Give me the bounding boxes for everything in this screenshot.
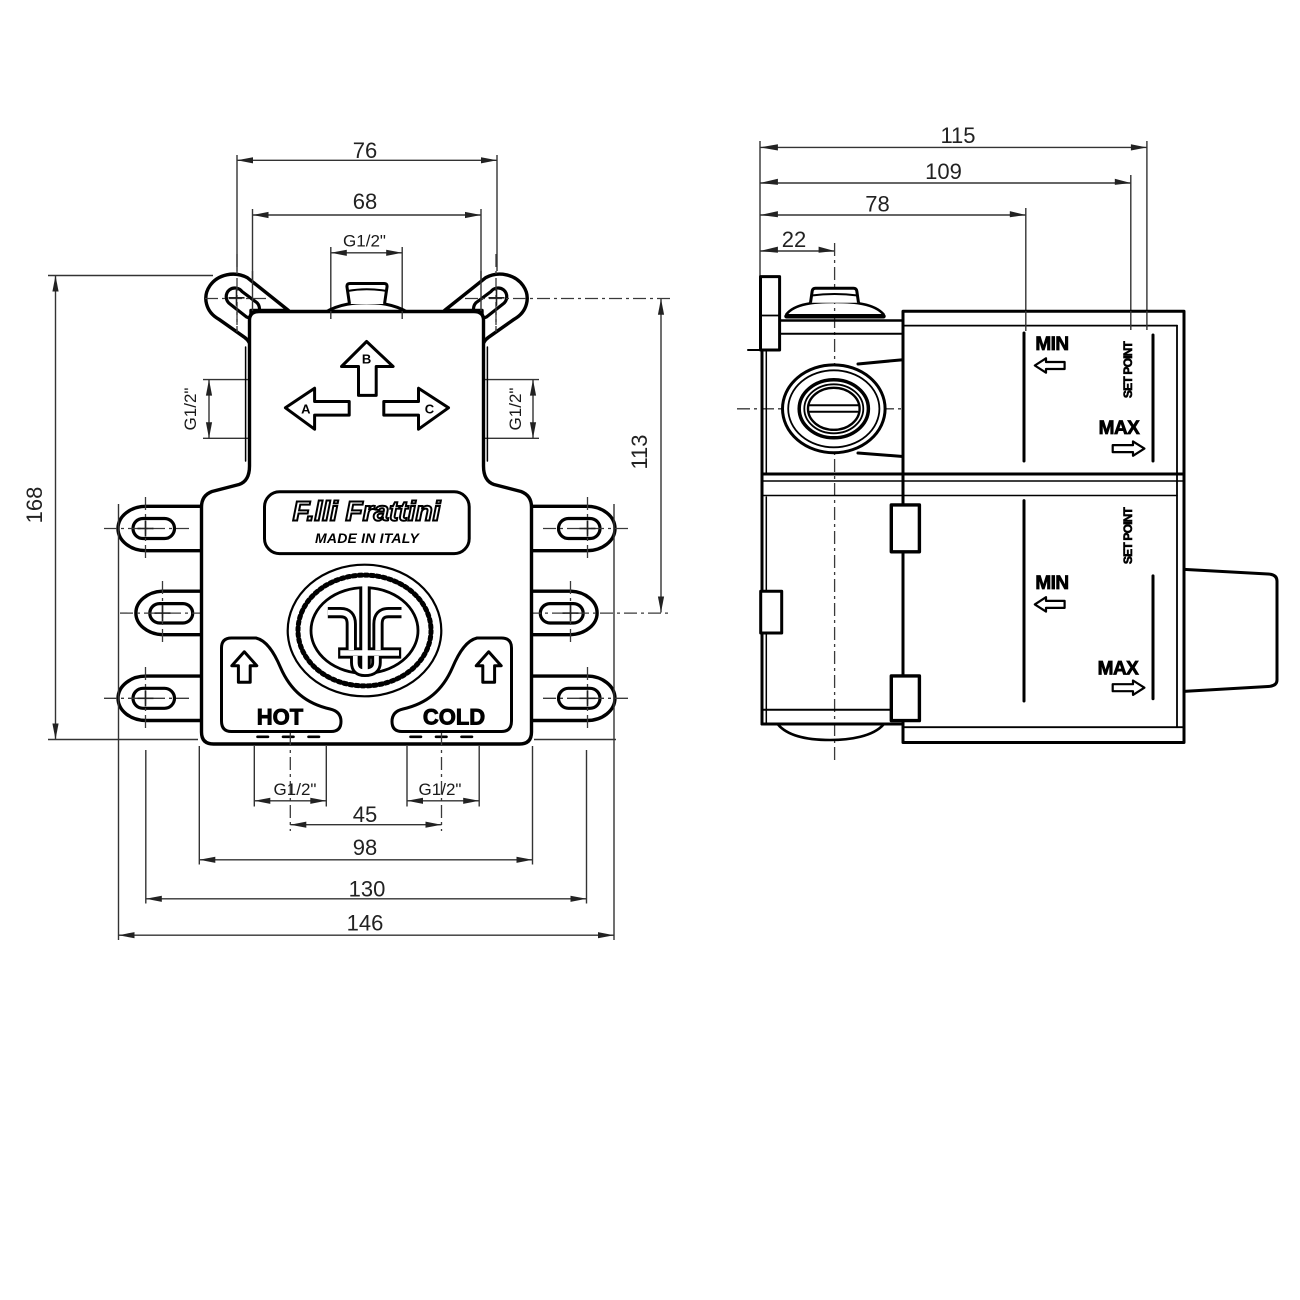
svg-text:168: 168	[22, 487, 47, 524]
svg-text:45: 45	[353, 802, 377, 827]
svg-text:G1/2": G1/2"	[274, 780, 317, 799]
svg-text:G1/2": G1/2"	[343, 232, 386, 251]
svg-text:G1/2": G1/2"	[506, 388, 525, 431]
svg-text:130: 130	[349, 877, 386, 902]
svg-text:SET POINT: SET POINT	[1121, 506, 1135, 564]
svg-text:68: 68	[353, 189, 377, 214]
svg-text:COLD: COLD	[423, 705, 485, 730]
svg-text:F.lli Frattini: F.lli Frattini	[293, 496, 442, 527]
svg-text:MIN: MIN	[1035, 334, 1068, 355]
svg-text:HOT: HOT	[257, 705, 304, 730]
svg-text:76: 76	[353, 138, 377, 163]
svg-text:115: 115	[940, 123, 975, 148]
svg-text:MIN: MIN	[1035, 573, 1068, 594]
svg-text:113: 113	[627, 434, 652, 469]
svg-text:MAX: MAX	[1099, 418, 1141, 439]
svg-text:G1/2": G1/2"	[181, 388, 200, 431]
svg-text:SET POINT: SET POINT	[1121, 340, 1135, 398]
svg-text:C: C	[425, 402, 435, 417]
svg-text:22: 22	[782, 227, 806, 252]
svg-text:B: B	[362, 352, 371, 367]
svg-text:146: 146	[347, 911, 384, 936]
svg-text:MADE IN ITALY: MADE IN ITALY	[315, 530, 420, 546]
svg-text:A: A	[301, 402, 311, 417]
svg-text:78: 78	[865, 192, 889, 217]
svg-text:MAX: MAX	[1098, 659, 1140, 680]
svg-text:109: 109	[925, 159, 962, 184]
svg-text:98: 98	[353, 835, 377, 860]
svg-text:G1/2": G1/2"	[419, 780, 462, 799]
